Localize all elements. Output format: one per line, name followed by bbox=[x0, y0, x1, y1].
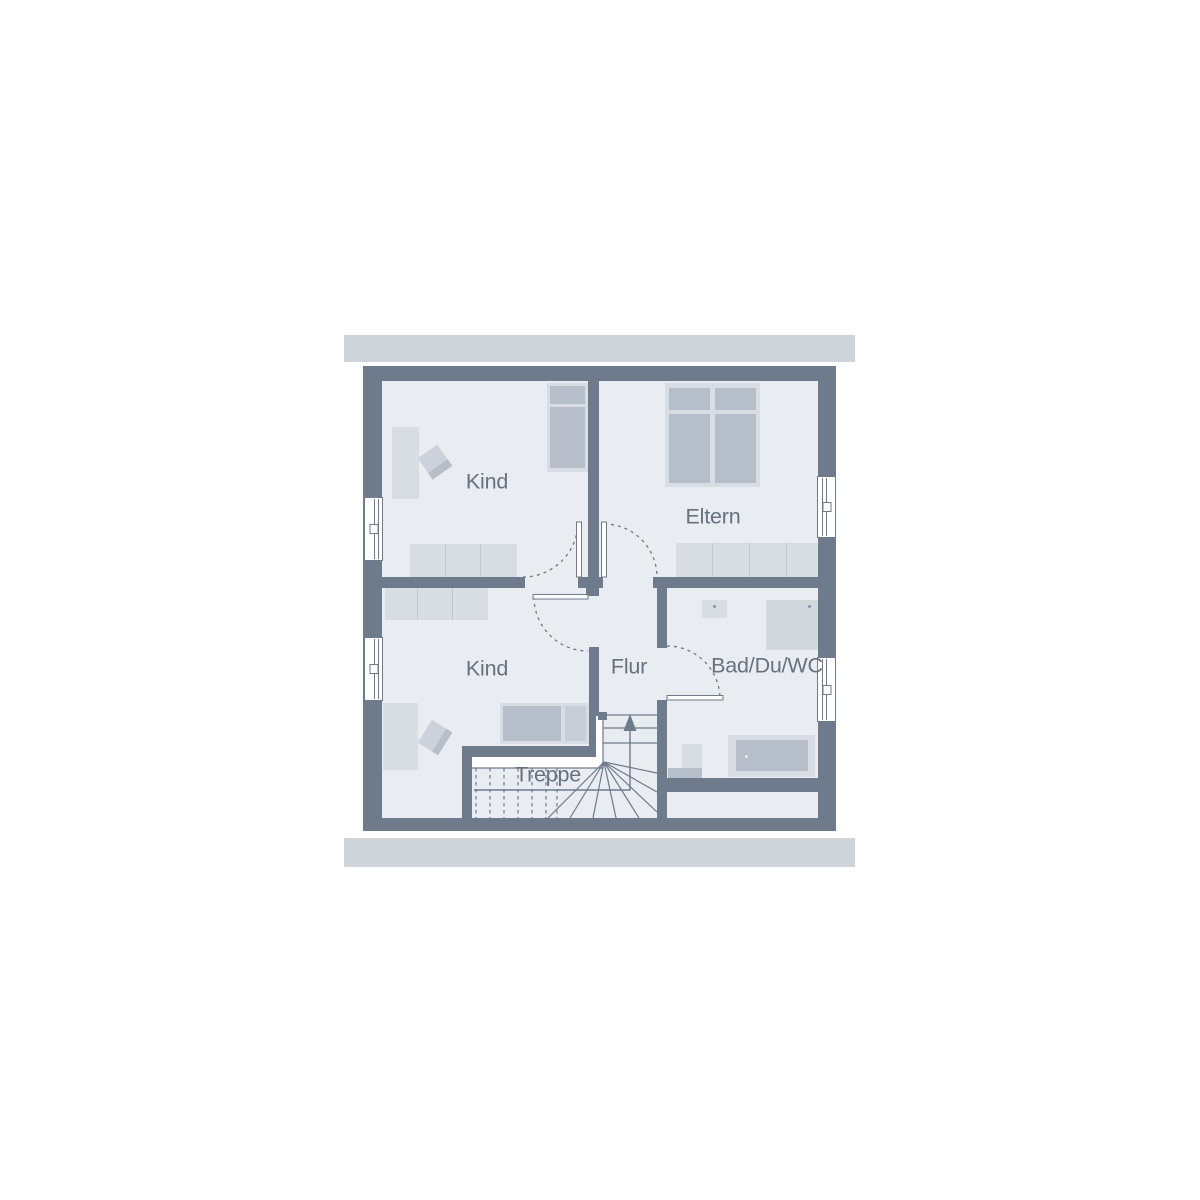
door-leaf-kind-bottom bbox=[533, 595, 588, 600]
door-leaf-bad bbox=[667, 696, 723, 701]
room-label-treppe: Treppe bbox=[515, 763, 581, 788]
door-arc-kind-bottom bbox=[534, 597, 588, 651]
room-label-kind-top: Kind bbox=[466, 470, 508, 495]
door-arc-kind-top bbox=[523, 522, 578, 577]
floorplan-canvas: Kind Eltern Kind Flur Bad/Du/WC Treppe bbox=[0, 0, 1200, 1200]
door-leaf-kind-top bbox=[577, 522, 582, 577]
door-arc-eltern bbox=[604, 524, 657, 577]
room-label-eltern: Eltern bbox=[686, 505, 741, 530]
room-label-flur: Flur bbox=[611, 655, 647, 680]
door-leaf-eltern bbox=[602, 522, 607, 577]
stair-landing-strip bbox=[596, 716, 603, 768]
room-label-kind-bottom: Kind bbox=[466, 657, 508, 682]
room-label-bad-du-wc: Bad/Du/WC bbox=[711, 654, 823, 679]
doors-and-stairs-overlay bbox=[0, 0, 1200, 1200]
